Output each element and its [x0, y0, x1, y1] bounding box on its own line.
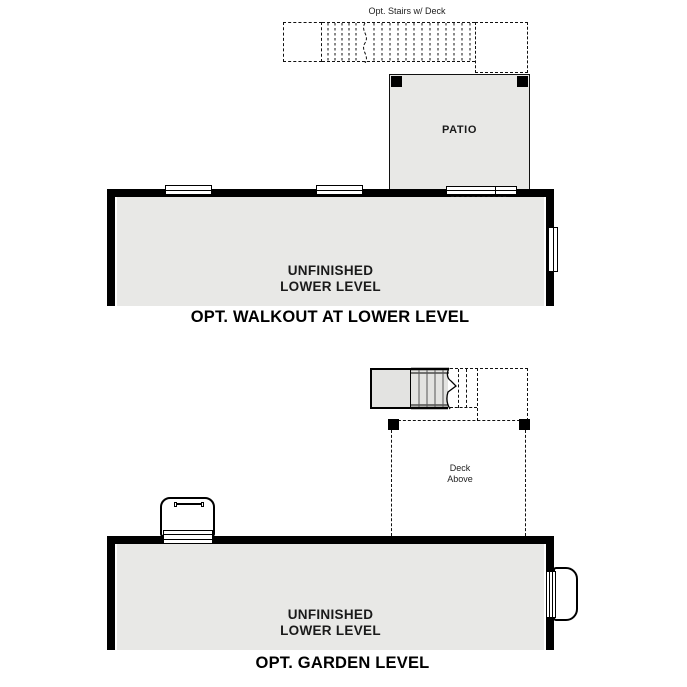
window-mullion: [317, 190, 362, 191]
room-label: UNFINISHED LOWER LEVEL: [107, 263, 554, 294]
deck-edge-line: [388, 420, 530, 421]
window-well: [553, 567, 578, 621]
room-label-line1: UNFINISHED: [107, 263, 554, 279]
window: [165, 185, 212, 195]
well-clip: [174, 502, 177, 507]
patio-post-right: [517, 76, 528, 87]
room-label-line2: LOWER LEVEL: [107, 279, 554, 295]
well-clip: [201, 502, 204, 507]
stair-dash-tread: [458, 369, 459, 408]
stair-dash-side: [477, 368, 478, 421]
room-label-line2: LOWER LEVEL: [107, 623, 554, 639]
room-label-line1: UNFINISHED: [107, 607, 554, 623]
room-label: UNFINISHED LOWER LEVEL: [107, 607, 554, 638]
opt-stair-run-outline: [322, 22, 475, 62]
opt-stairs-label: Opt. Stairs w/ Deck: [347, 6, 467, 17]
deck-side-line-right: [525, 430, 526, 536]
patio-area: PATIO: [389, 74, 530, 190]
egress-window: [163, 530, 213, 544]
opt-stair-treads: [322, 23, 475, 63]
stair-break-line: [364, 23, 367, 63]
window: [316, 185, 363, 195]
floorplan-sheet: Opt. Stairs w/ Deck: [0, 0, 687, 687]
stair-break-line: [447, 368, 456, 409]
patio-label: PATIO: [390, 124, 529, 136]
deck-side-line-left: [391, 430, 392, 536]
stair-dash-top: [450, 368, 528, 369]
sliding-door-screen: [451, 196, 506, 197]
deck-above-line1: Deck: [410, 463, 510, 474]
plan-title-walkout: OPT. WALKOUT AT LOWER LEVEL: [0, 308, 660, 327]
deck-above-label: Deck Above: [410, 463, 510, 485]
sliding-door-panel-split: [495, 187, 496, 194]
window-mullion: [164, 539, 212, 540]
opt-stair-landing-outline: [283, 22, 322, 62]
stair-dash-tread: [466, 369, 467, 408]
well-vent-bar: [176, 503, 202, 505]
stair-dash-side: [527, 368, 528, 421]
patio-post-left: [391, 76, 402, 87]
sliding-door-track: [447, 190, 516, 191]
stair-landing: [370, 368, 412, 409]
deck-post-left: [388, 419, 399, 430]
window-mullion: [164, 534, 212, 535]
window-mullion: [166, 190, 211, 191]
deck-above-line2: Above: [410, 474, 510, 485]
sliding-door: [446, 186, 517, 195]
stair-treads: [411, 367, 461, 411]
deck-post-right: [519, 419, 530, 430]
stair-dash-bottom: [450, 407, 477, 408]
opt-deck-outline: [475, 22, 528, 73]
plan-title-garden: OPT. GARDEN LEVEL: [30, 654, 655, 673]
